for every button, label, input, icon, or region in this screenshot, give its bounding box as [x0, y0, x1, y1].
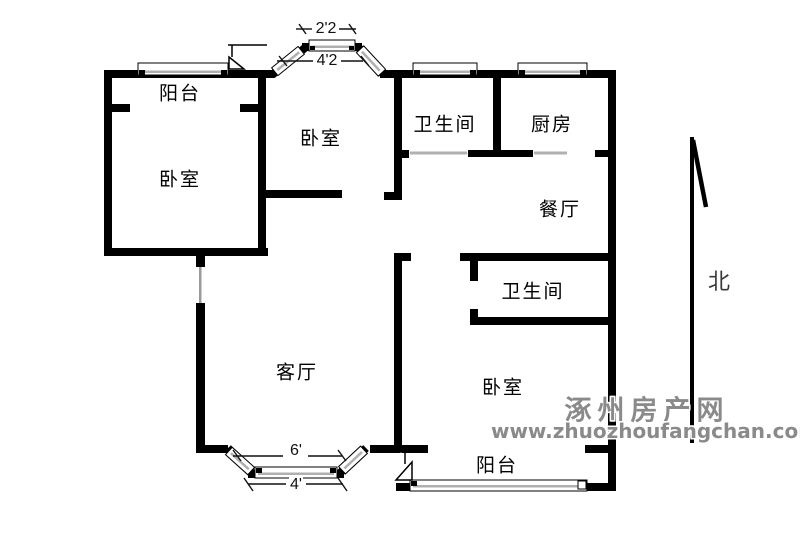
room-label-living-room: 客厅: [276, 358, 318, 385]
sliding-door-kitchen: [533, 148, 568, 158]
window-bay-bottom-left-angled: [226, 447, 255, 475]
door-swing-icon-top: [228, 45, 267, 69]
window-bay-bottom-right-angled: [339, 446, 368, 474]
dimension-label-bay-top-inner: 2'2: [315, 20, 338, 38]
sliding-door-bathroom-top: [409, 148, 468, 158]
window-balcony-bottom: [410, 480, 587, 491]
floorplan-drawing: [0, 0, 800, 537]
door-swing-icon-bottom: [396, 451, 414, 480]
room-label-balcony-bottom: 阳台: [476, 451, 518, 478]
room-label-bathroom-top: 卫生间: [413, 110, 476, 137]
dimension-label-bay-bottom-inner: 6': [289, 442, 303, 460]
room-label-bedroom-left: 卧室: [159, 165, 201, 192]
room-label-bathroom-middle: 卫生间: [501, 277, 564, 304]
dimension-label-bay-top-outer: 4'2: [316, 52, 339, 70]
room-label-dining-room: 餐厅: [539, 195, 581, 222]
dimension-label-bay-bottom-outer: 4': [289, 476, 303, 494]
room-label-bedroom-top: 卧室: [300, 124, 342, 151]
window-bathroom-top: [413, 63, 477, 75]
window-balcony-top: [138, 63, 228, 75]
watermark-site-url: www.zhuozhoufangchan.com: [491, 419, 800, 443]
window-kitchen: [518, 63, 587, 75]
window-bay-top: [309, 40, 355, 51]
room-label-bedroom-right: 卧室: [482, 373, 524, 400]
room-label-balcony-top: 阳台: [159, 79, 201, 106]
room-label-kitchen: 厨房: [531, 110, 573, 137]
north-label: 北: [708, 264, 730, 296]
dimension-lines: [233, 24, 369, 491]
floorplan-image: 阳台 卧室 卧室 卫生间 厨房 餐厅 卫生间 客厅 卧室 阳台 2'2 4'2 …: [0, 0, 800, 537]
